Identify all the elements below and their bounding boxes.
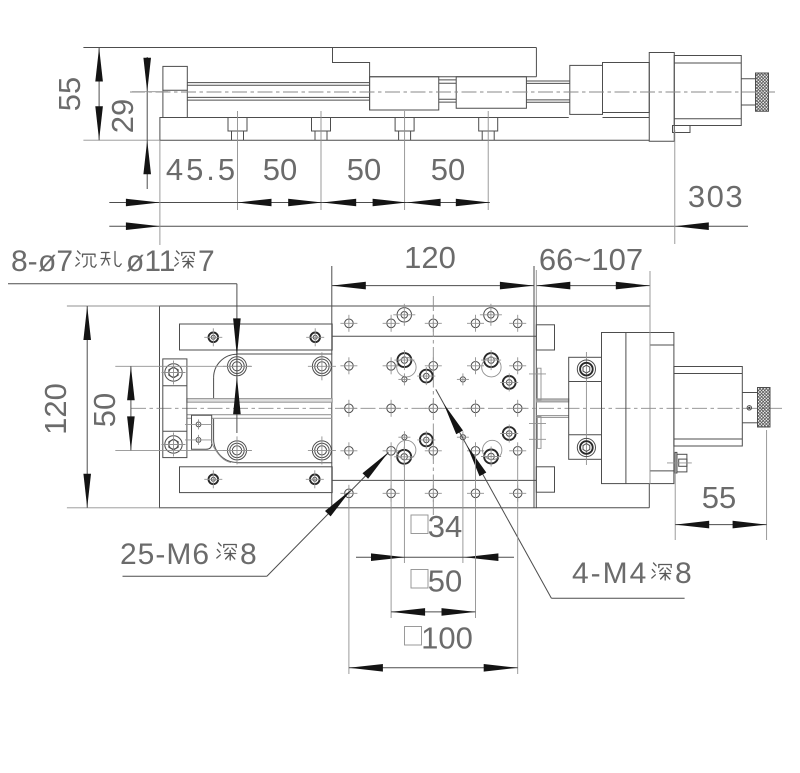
svg-text:25-M6: 25-M6 [120, 538, 210, 571]
svg-text:120: 120 [38, 383, 73, 435]
svg-text:ø7: ø7 [38, 245, 73, 278]
svg-text:50: 50 [347, 152, 381, 187]
svg-text:66~107: 66~107 [539, 242, 643, 277]
svg-text:50: 50 [431, 152, 465, 187]
svg-text:8: 8 [240, 538, 257, 571]
svg-text:55: 55 [702, 480, 736, 515]
svg-text:45.5: 45.5 [166, 152, 238, 187]
svg-text:8-: 8- [11, 245, 38, 278]
svg-text:55: 55 [52, 77, 87, 111]
svg-text:303: 303 [688, 179, 744, 214]
svg-text:100: 100 [421, 621, 473, 656]
svg-text:29: 29 [105, 99, 140, 133]
svg-text:7: 7 [198, 245, 215, 278]
svg-text:120: 120 [404, 240, 456, 275]
svg-text:8: 8 [675, 557, 692, 590]
svg-text:ø11: ø11 [126, 245, 175, 278]
svg-text:50: 50 [263, 152, 297, 187]
svg-text:50: 50 [87, 393, 122, 427]
svg-text:34: 34 [428, 509, 462, 544]
svg-text:4-M4: 4-M4 [572, 557, 648, 590]
svg-text:50: 50 [428, 564, 462, 599]
